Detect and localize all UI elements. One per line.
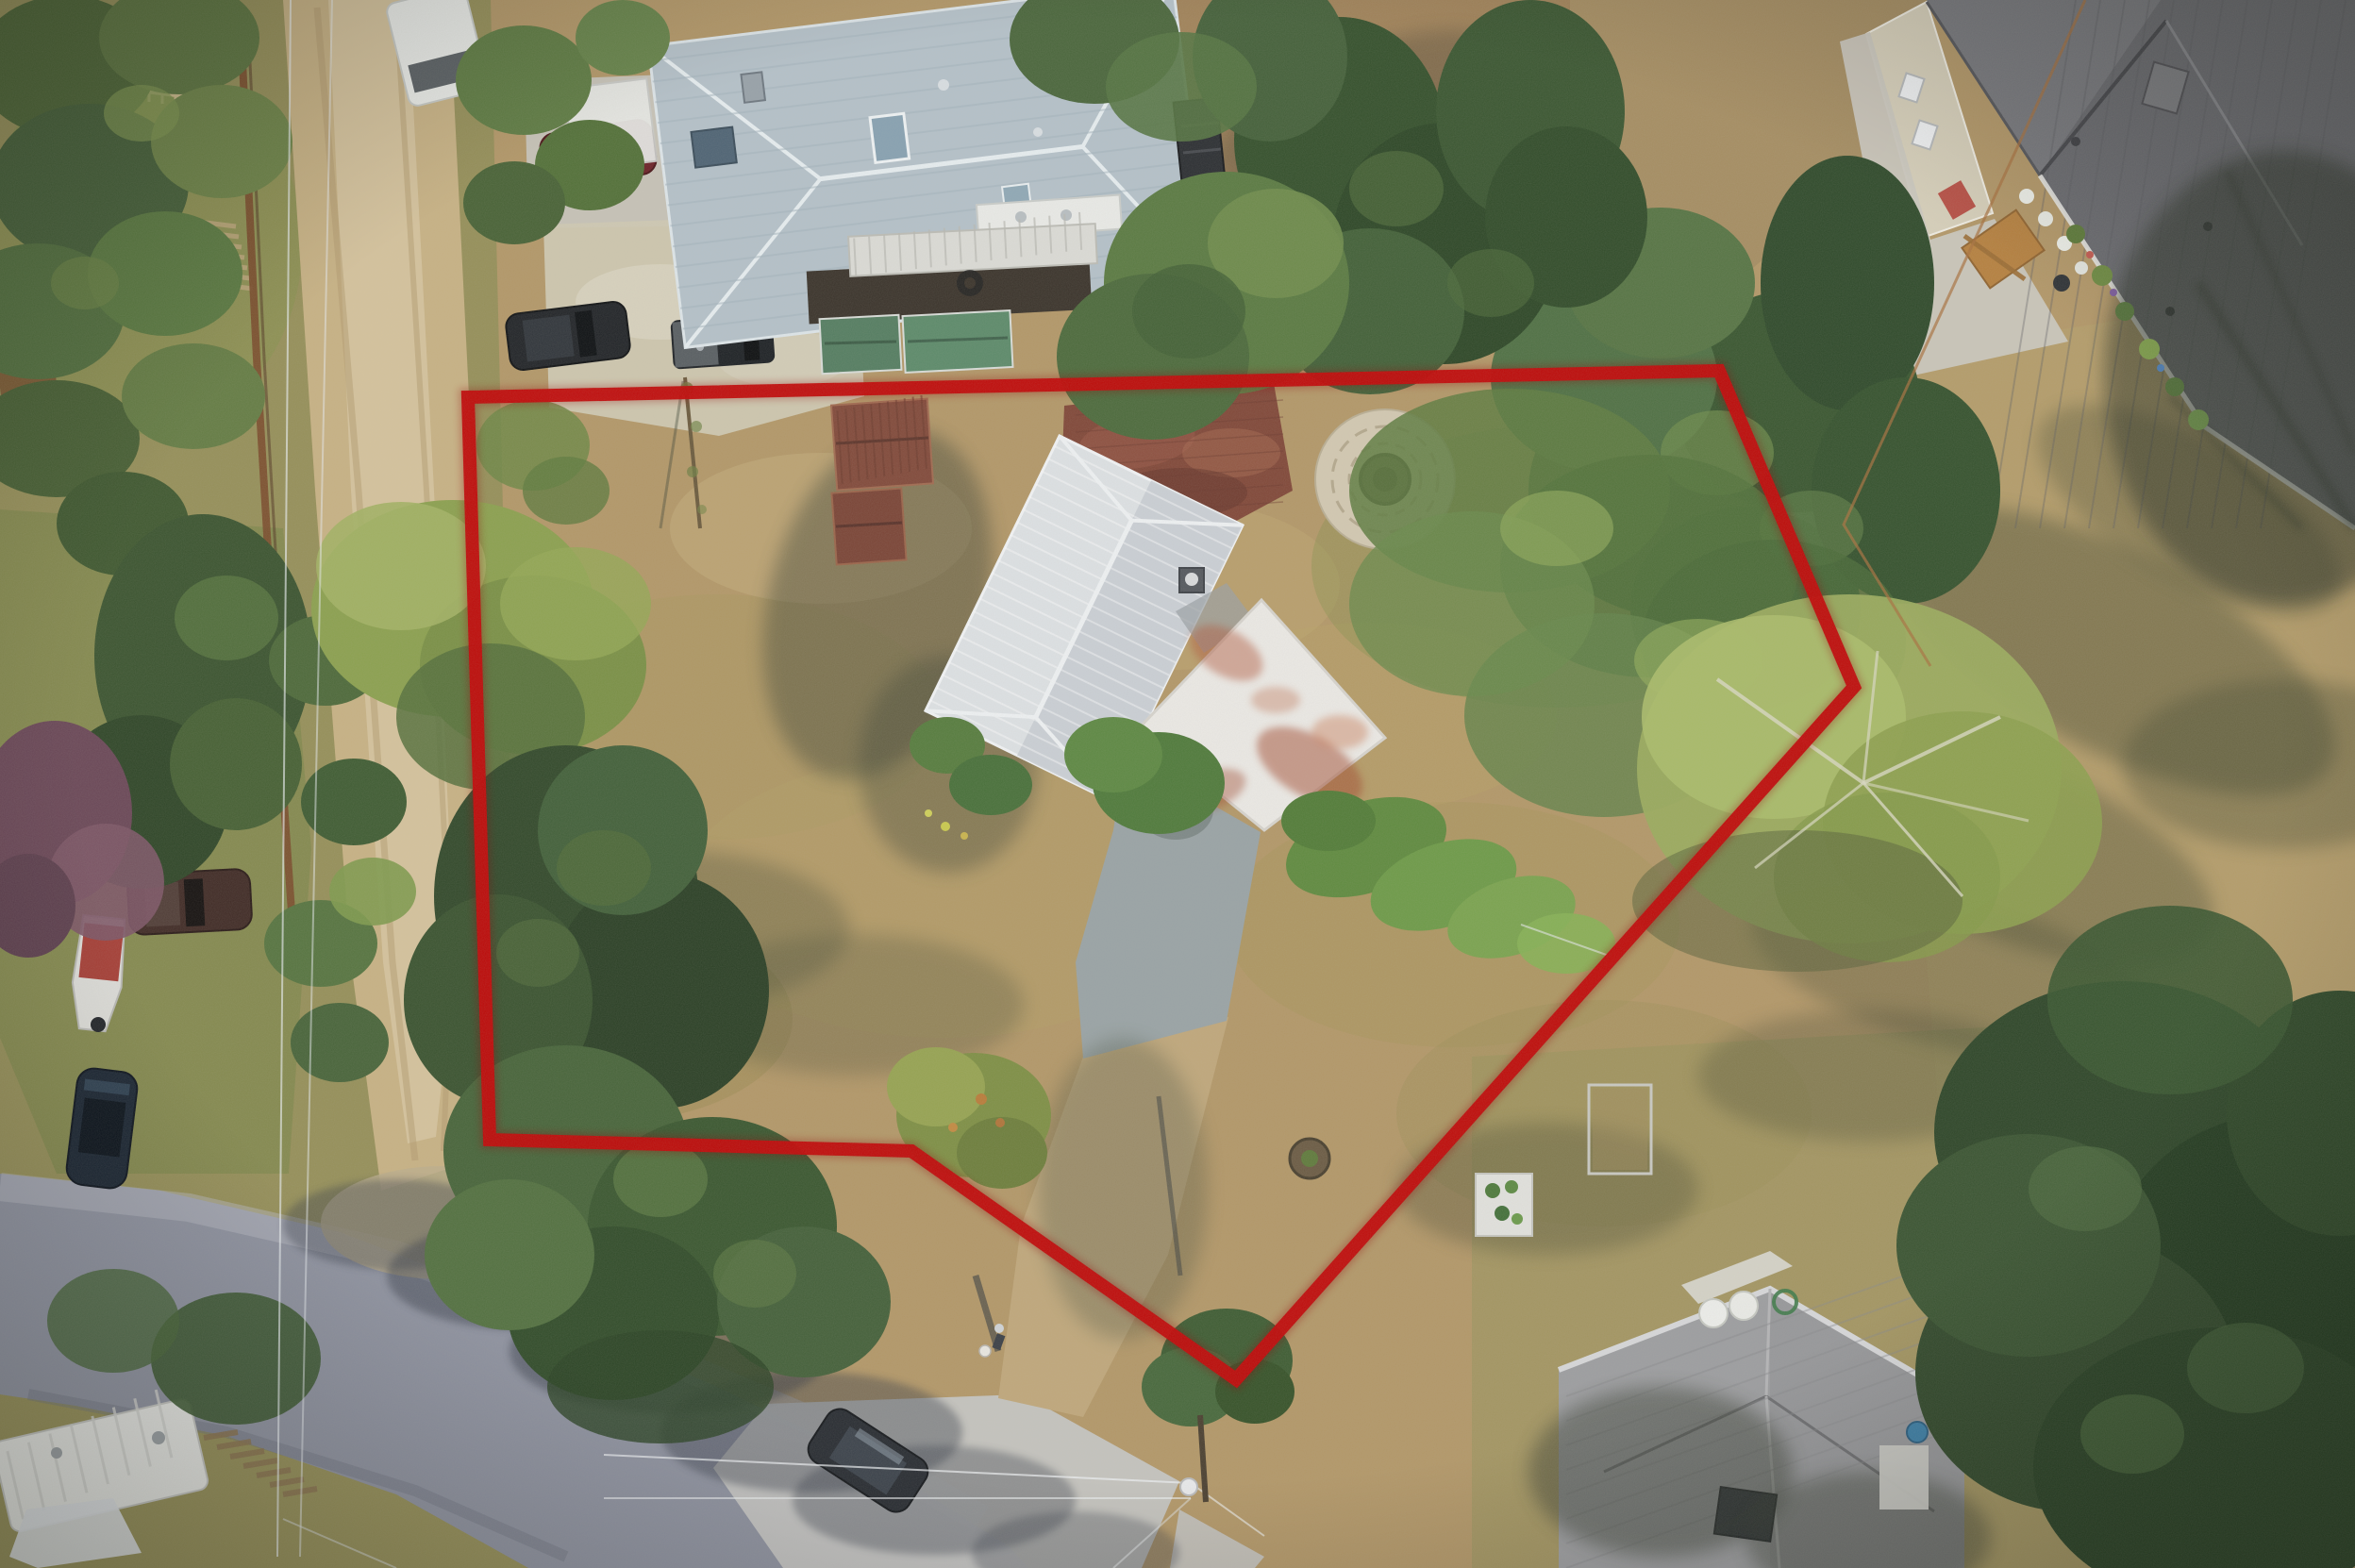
aerial-photo <box>0 0 2355 1568</box>
vignette-overlay <box>0 0 2355 1568</box>
screenshot-root <box>0 0 2355 1568</box>
